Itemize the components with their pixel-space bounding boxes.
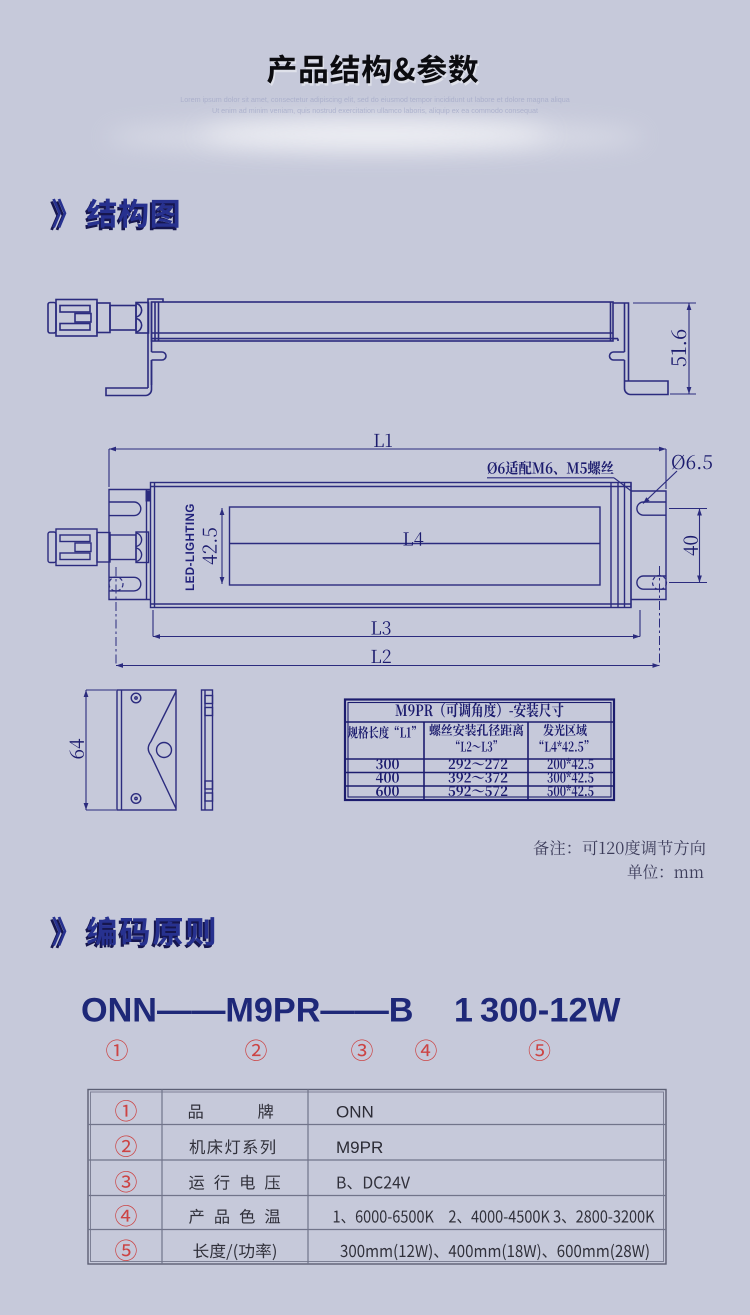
svg-text:ONN: ONN	[336, 1103, 374, 1122]
svg-text:LED-LIGHTING: LED-LIGHTING	[185, 503, 197, 591]
svg-text:ONN——M9PR——B: ONN——M9PR——B	[81, 991, 414, 1029]
svg-text:M9PR: M9PR	[336, 1138, 383, 1157]
svg-text:1: 1	[454, 991, 473, 1029]
svg-text:300-12W: 300-12W	[480, 991, 621, 1029]
svg-text:Ut enim ad minim veniam, quis: Ut enim ad minim veniam, quis nostrud ex…	[212, 106, 538, 115]
svg-text:Lorem ipsum dolor sit amet, co: Lorem ipsum dolor sit amet, consectetur …	[180, 95, 570, 104]
